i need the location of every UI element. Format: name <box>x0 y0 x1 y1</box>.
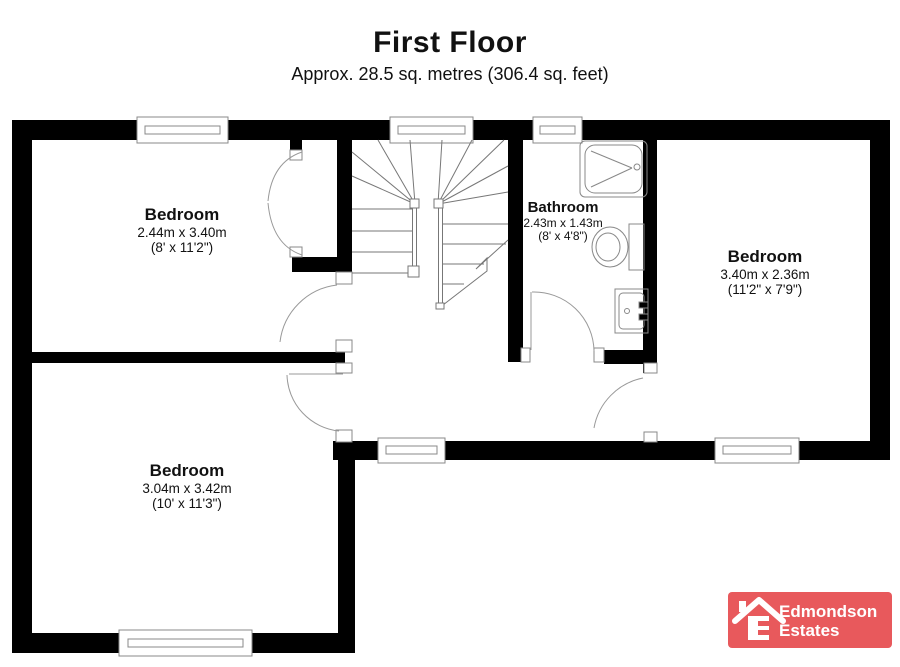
room-size-imperial: (8' x 11'2") <box>137 240 226 256</box>
window-icon <box>390 117 473 143</box>
room-label-bedroom-right: Bedroom 3.40m x 2.36m (11'2" x 7'9") <box>720 248 809 298</box>
window-icon <box>378 438 445 463</box>
wall-bathroom-right <box>643 138 657 373</box>
room-name: Bedroom <box>142 462 231 481</box>
room-name: Bathroom <box>523 200 602 217</box>
room-size-imperial: (11'2" x 7'9") <box>720 282 809 298</box>
wall-bathroom-left <box>508 138 523 362</box>
window-icon <box>715 438 799 463</box>
newel-post <box>408 266 419 277</box>
room-size-metric: 3.40m x 2.36m <box>720 267 809 283</box>
walls <box>12 120 890 653</box>
logo: Edmondson Estates <box>728 592 892 648</box>
door-arc <box>287 375 339 431</box>
newel-post <box>410 199 419 208</box>
room-label-bedroom-bottom-left: Bedroom 3.04m x 3.42m (10' x 11'3") <box>142 462 231 512</box>
room-size-imperial: (10' x 11'3") <box>142 496 231 512</box>
room-label-bedroom-top-left: Bedroom 2.44m x 3.40m (8' x 11'2") <box>137 206 226 256</box>
wall-left <box>12 120 32 653</box>
newel-post <box>434 199 443 208</box>
window-icon <box>119 630 252 656</box>
wall-bl-bedroom-right <box>338 443 355 653</box>
shower-icon <box>580 141 647 197</box>
door-arc <box>532 292 594 351</box>
room-name: Bedroom <box>720 248 809 267</box>
door-arc <box>594 378 643 428</box>
room-name: Bedroom <box>137 206 226 225</box>
newel-post <box>436 303 444 309</box>
room-size-metric: 3.04m x 3.42m <box>142 481 231 497</box>
stair-break-line <box>443 240 508 305</box>
doors <box>268 152 643 431</box>
logo-text-line2: Estates <box>779 621 839 640</box>
room-size-metric: 2.43m x 1.43m <box>523 217 602 231</box>
room-size-metric: 2.44m x 3.40m <box>137 225 226 241</box>
floorplan-page: First Floor Approx. 28.5 sq. metres (306… <box>0 0 900 667</box>
room-size-imperial: (8' x 4'8") <box>523 230 602 244</box>
wall-divider-left-bedrooms <box>28 352 345 363</box>
wall-tl-bedroom-right <box>337 138 352 272</box>
room-label-bathroom: Bathroom 2.43m x 1.43m (8' x 4'8") <box>523 200 602 244</box>
window-icon <box>533 117 582 143</box>
windows <box>119 117 799 656</box>
wall-wardrobe-bottom <box>292 257 352 272</box>
wall-right <box>870 120 890 460</box>
door-arc <box>280 285 337 342</box>
floor-plan: Edmondson Estates <box>0 0 900 667</box>
window-icon <box>137 117 228 143</box>
logo-text-line1: Edmondson <box>779 602 877 621</box>
staircase <box>352 140 508 309</box>
